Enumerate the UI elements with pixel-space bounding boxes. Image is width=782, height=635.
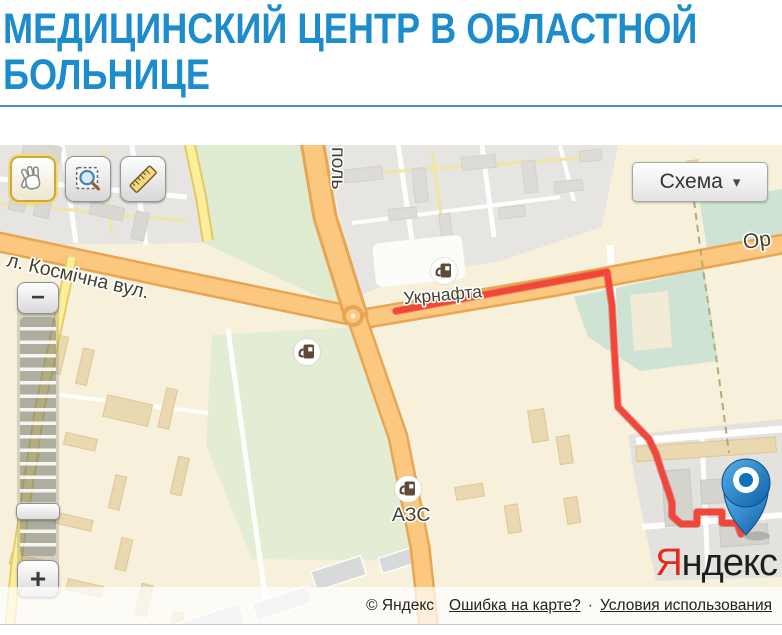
fuel-pump-icon[interactable] (294, 339, 321, 366)
fuel-pump-icon[interactable] (395, 476, 422, 503)
yandex-logo-ya: Я (655, 542, 681, 584)
page-title: МЕДИЦИНСКИЙ ЦЕНТР В ОБЛАСТНОЙ БОЛЬНИЦЕ (3, 6, 782, 98)
ruler-tool-button[interactable] (120, 156, 166, 202)
plot-in-green (630, 291, 672, 351)
zoom-out-button[interactable]: − (17, 282, 59, 314)
marquee-zoom-tool-button[interactable] (65, 156, 111, 202)
map-error-link[interactable]: Ошибка на карте? (449, 597, 581, 615)
page-title-line2: БОЛЬНИЦЕ (3, 52, 657, 98)
chevron-down-icon: ▾ (733, 173, 741, 191)
page-title-line1: МЕДИЦИНСКИЙ ЦЕНТР В ОБЛАСТНОЙ (3, 6, 657, 52)
layer-switcher-label: Схема (660, 170, 723, 194)
fuel-pump-icon[interactable] (431, 258, 458, 285)
pan-hand-icon (16, 162, 50, 196)
zoom-control: − + (17, 282, 59, 598)
marquee-zoom-icon (71, 162, 105, 196)
ruler-icon (126, 162, 160, 196)
pan-tool-button[interactable] (10, 156, 56, 202)
street-label: Ор (741, 227, 772, 254)
street-label-vertical: поль (327, 147, 349, 190)
map-toolbar (10, 156, 166, 202)
terms-of-use-link[interactable]: Условия использования (600, 597, 772, 615)
page: МЕДИЦИНСКИЙ ЦЕНТР В ОБЛАСТНОЙ БОЛЬНИЦЕ (0, 6, 782, 625)
layer-switcher-button[interactable]: Схема ▾ (632, 162, 768, 202)
zoom-slider-track[interactable] (20, 317, 56, 557)
yandex-logo-rest: ндекс (682, 542, 777, 584)
roundabout-island (351, 314, 356, 319)
title-divider (0, 105, 782, 107)
yandex-logo[interactable]: Яндекс (655, 542, 777, 585)
zoom-slider-handle[interactable] (16, 503, 60, 520)
zoom-out-icon: − (31, 284, 45, 311)
copyright-text: © Яндекс (366, 597, 434, 615)
attribution-separator: · (588, 597, 593, 615)
map-canvas[interactable]: Укрнафта АЗС л. Космічна вул. поль Ор (0, 145, 782, 625)
map-attribution: © Яндекс Ошибка на карте? · Условия испо… (0, 587, 782, 624)
gas-station-label: АЗС (392, 504, 430, 526)
